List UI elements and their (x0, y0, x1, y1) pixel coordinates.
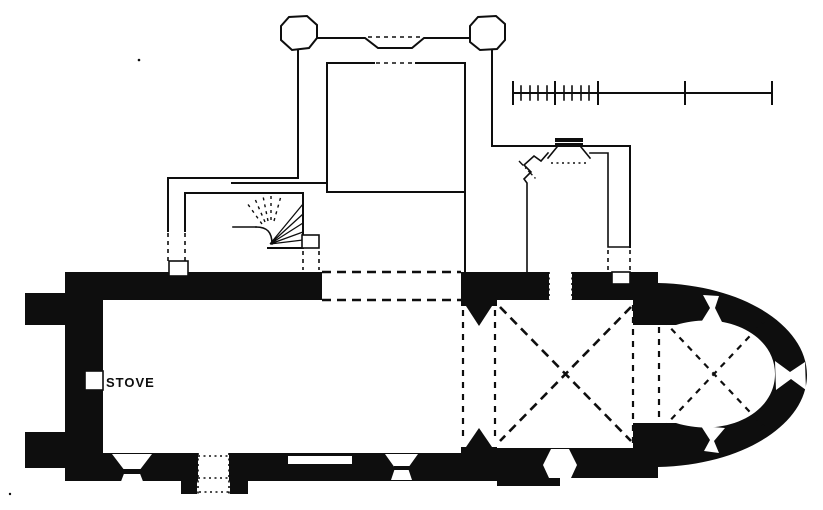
stove-recess (85, 371, 103, 390)
stair-newel-curve (256, 227, 272, 244)
vestry-inner-walls (590, 153, 630, 247)
south-doorway-gap (198, 453, 229, 481)
vestry-door-splays (548, 147, 590, 158)
spiral-stair (233, 193, 319, 270)
chancel-vault-ribs (500, 307, 631, 441)
chancel-arch-dashed (463, 310, 495, 442)
tower-inner-room (327, 63, 465, 192)
vestry-chancel-doorway (549, 272, 572, 300)
scan-speck-1 (138, 59, 141, 62)
stair-dashed-jambs (303, 251, 319, 270)
scanned-church-floor-plan: STOVE (0, 0, 823, 510)
floor-plan-drawing: STOVE (0, 0, 823, 510)
vestry-chimney-corner (524, 153, 548, 272)
southwest-buttress (25, 432, 67, 468)
chancel-arch-north-pier (461, 272, 497, 306)
apse-vault-ribs (663, 320, 765, 428)
stove-label: STOVE (106, 375, 155, 390)
stair-treads-solid (270, 204, 303, 244)
chancel-arch-north-respond (466, 306, 492, 326)
scale-bar (513, 82, 772, 104)
tower-ne-turret (470, 16, 505, 50)
tower-arch-dashed (322, 272, 461, 300)
vestry-north-wall (492, 146, 630, 247)
vestry-step-lower (555, 143, 583, 147)
vestry-step-upper (555, 138, 583, 142)
tower-north-wall (317, 38, 470, 48)
chancel-south-wall (497, 448, 658, 478)
vestry-east-wall-dashed (608, 250, 630, 270)
chancel-arch-south-pier (461, 447, 497, 481)
tower-nw-turret (281, 16, 317, 50)
chancel-arch-south-respond (466, 428, 492, 447)
stair-doorway (302, 235, 319, 248)
nave-south-window-2-bar (394, 466, 413, 470)
chancel-north-doorway-notch (612, 272, 630, 284)
northwest-annexe (168, 178, 303, 262)
nave-south-recess-slot (288, 456, 352, 464)
chancel-south-plinth (497, 478, 560, 486)
nave-north-wall (65, 272, 322, 300)
scan-speck-2 (9, 493, 11, 495)
apse-arch-south-respond (633, 423, 658, 448)
nave-south-window-1-bar (122, 469, 142, 474)
vestry (492, 138, 630, 272)
apse-arch-north-respond (633, 300, 658, 325)
annexe-doorway-notch (169, 261, 188, 276)
stair-treads-dashed (247, 195, 281, 224)
northwest-buttress (25, 293, 67, 325)
tower (232, 16, 505, 272)
